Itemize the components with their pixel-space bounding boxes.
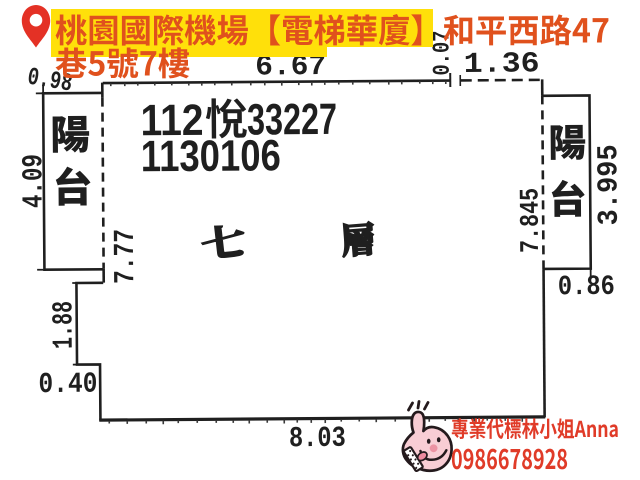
svg-text:1130106: 1130106 <box>141 131 281 181</box>
svg-text:1.36: 1.36 <box>464 47 540 81</box>
svg-text:7.845: 7.845 <box>517 188 547 253</box>
svg-text:0.98: 0.98 <box>25 63 74 99</box>
svg-text:0.86: 0.86 <box>558 272 615 303</box>
svg-text:0.40: 0.40 <box>38 368 97 401</box>
svg-text:8.03: 8.03 <box>289 422 346 455</box>
svg-text:3.995: 3.995 <box>592 144 626 225</box>
svg-text:4.09: 4.09 <box>17 154 50 208</box>
svg-text:1.88: 1.88 <box>47 301 80 349</box>
svg-text:7.77: 7.77 <box>109 229 142 284</box>
